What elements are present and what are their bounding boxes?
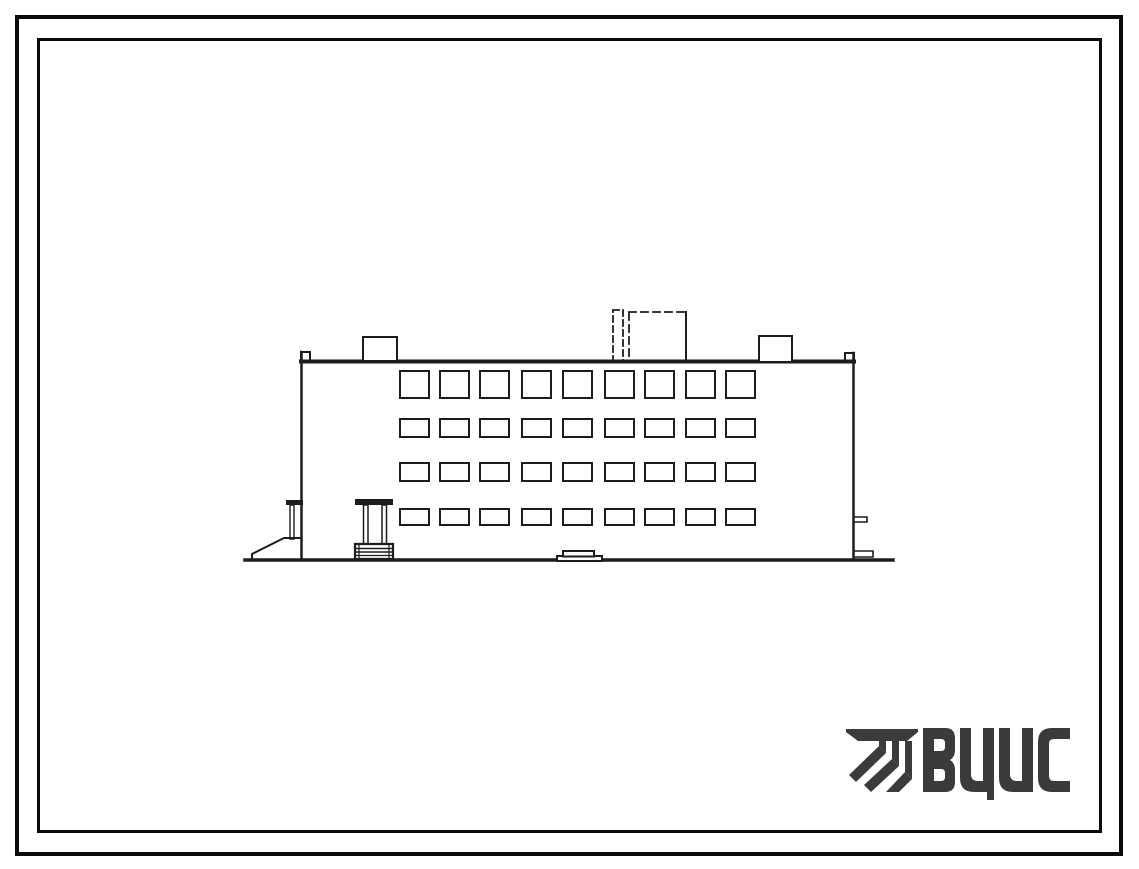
window xyxy=(440,371,469,398)
window xyxy=(522,419,551,437)
window xyxy=(400,419,429,437)
window xyxy=(480,371,509,398)
hatched-monogram-icon xyxy=(846,729,918,792)
window xyxy=(605,509,634,525)
window xyxy=(726,419,755,437)
window xyxy=(480,509,509,525)
drawing-sheet: ВЦИС xyxy=(0,0,1139,869)
window xyxy=(645,463,674,481)
porch-post xyxy=(364,505,369,546)
window xyxy=(400,463,429,481)
porch-canopy xyxy=(355,499,393,505)
window xyxy=(686,509,715,525)
rooftop-box-right xyxy=(759,336,792,362)
side-canopy xyxy=(286,500,303,505)
window xyxy=(726,371,755,398)
window xyxy=(563,509,592,525)
rooftop-penthouse xyxy=(629,312,686,361)
window xyxy=(480,419,509,437)
window xyxy=(726,463,755,481)
window xyxy=(440,419,469,437)
window xyxy=(563,371,592,398)
side-post xyxy=(290,505,294,539)
entrance-porch xyxy=(355,499,393,559)
window xyxy=(605,371,634,398)
window xyxy=(522,371,551,398)
logo-wordmark xyxy=(923,728,1070,800)
window xyxy=(645,419,674,437)
ramp-profile xyxy=(252,538,301,560)
window xyxy=(645,509,674,525)
window xyxy=(563,419,592,437)
window-grid xyxy=(400,371,755,525)
wall-base-step xyxy=(854,551,873,557)
window xyxy=(686,419,715,437)
window xyxy=(400,371,429,398)
window xyxy=(645,371,674,398)
window xyxy=(440,509,469,525)
wall-bracket xyxy=(854,517,867,522)
rooftop-structures xyxy=(363,310,792,362)
doorstep-stoop xyxy=(557,551,602,561)
window xyxy=(522,463,551,481)
rooftop-box-left xyxy=(363,337,397,361)
right-wall-fittings xyxy=(854,517,873,557)
window xyxy=(686,371,715,398)
window xyxy=(440,463,469,481)
window xyxy=(605,419,634,437)
rooftop-tower-narrow xyxy=(613,310,623,361)
side-entry-ramp xyxy=(252,500,303,560)
window xyxy=(522,509,551,525)
window xyxy=(726,509,755,525)
window xyxy=(400,509,429,525)
window xyxy=(686,463,715,481)
window xyxy=(563,463,592,481)
window xyxy=(480,463,509,481)
logo: ВЦИС xyxy=(846,726,1074,804)
window xyxy=(605,463,634,481)
porch-post xyxy=(382,505,387,546)
